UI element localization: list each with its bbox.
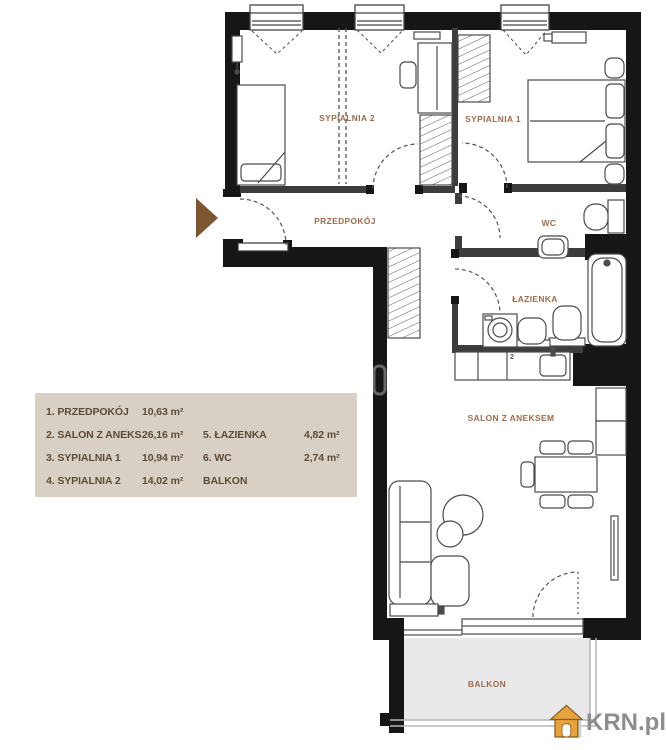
- legend-room-area: 14,02 m²: [142, 475, 183, 487]
- door-lazienka: [455, 269, 500, 314]
- door-sypialnia1: [462, 143, 507, 188]
- legend-room-name: 3. SYPIALNIA 1: [46, 452, 142, 464]
- legend-item: 4. SYPIALNIA 2 14,02 m²: [46, 469, 203, 492]
- dresser: [544, 32, 586, 43]
- washbasin: [549, 306, 585, 346]
- entrance-arrow-icon: [196, 198, 218, 238]
- legend-item: 2. SALON Z ANEKS. 26,16 m²: [46, 423, 203, 446]
- toilet-lazienka: [514, 318, 550, 347]
- legend-room-name: 6. WC: [203, 452, 304, 464]
- tv-stand: [390, 604, 444, 616]
- legend-item: 3. SYPIALNIA 1 10,94 m²: [46, 446, 203, 469]
- legend-item: 1. PRZEDPOKÓJ 10,63 m²: [46, 400, 203, 423]
- window-sypialnia2-right: [355, 5, 404, 30]
- door-balkon: [533, 572, 578, 617]
- legend-room-area: 10,63 m²: [142, 406, 183, 418]
- logo-text: KRN.pl: [586, 700, 666, 745]
- dashed-partition: [339, 28, 346, 184]
- door-sypialnia2: [373, 144, 418, 189]
- label-sypialnia2: SYPIALNIA 2: [319, 113, 375, 123]
- house-icon: [548, 700, 583, 745]
- legend-room-area: 10,94 m²: [142, 452, 183, 464]
- legend-room-name: 4. SYPIALNIA 2: [46, 475, 142, 487]
- entrance-door: [238, 199, 288, 251]
- legend-room-area: 26,16 m²: [142, 429, 183, 441]
- kitchen-counter: [455, 347, 570, 380]
- label-lazienka: ŁAZIENKA: [512, 294, 558, 304]
- legend-room-name: 1. PRZEDPOKÓJ: [46, 406, 142, 418]
- legend-item: BALKON: [203, 469, 357, 492]
- legend-room-area: 2,74 m²: [304, 452, 340, 464]
- legend-box: 1. PRZEDPOKÓJ 10,63 m² 2. SALON Z ANEKS.…: [35, 393, 357, 497]
- legend-room-area: 4,82 m²: [304, 429, 340, 441]
- legend-column-1: 1. PRZEDPOKÓJ 10,63 m² 2. SALON Z ANEKS.…: [46, 400, 203, 497]
- windows: [250, 5, 549, 30]
- label-salon: SALON Z ANEKSEM: [468, 413, 555, 423]
- floor-plan: SYPIALNIA 2 SYPIALNIA 1 PRZEDPOKÓJ WC ŁA…: [0, 0, 666, 750]
- radiator-salon: [611, 516, 618, 580]
- label-przedpokoj: PRZEDPOKÓJ: [314, 215, 376, 226]
- bathtub: [588, 254, 626, 346]
- label-sypialnia1: SYPIALNIA 1: [465, 114, 521, 124]
- label-wc: WC: [542, 218, 557, 228]
- legend-column-2: 5. ŁAZIENKA 4,82 m² 6. WC 2,74 m² BALKON: [203, 400, 357, 497]
- toilet-wc: [584, 200, 624, 233]
- coffee-table: [437, 495, 483, 547]
- legend-room-name: BALKON: [203, 475, 304, 487]
- washing-machine: [483, 314, 517, 347]
- kitchen-tall-units: [596, 388, 626, 455]
- legend-spacer: [203, 400, 357, 423]
- balcony-window: [404, 619, 583, 635]
- wardrobe-sypialnia2: [420, 115, 452, 185]
- dining-set: [521, 441, 597, 508]
- desk: [400, 32, 452, 113]
- bed-double: [528, 58, 625, 184]
- sink-wc: [538, 236, 568, 258]
- legend-room-name: 2. SALON Z ANEKS.: [46, 429, 142, 441]
- room-number-marker: 2: [510, 354, 514, 361]
- wardrobe-przedpokoj: [388, 248, 420, 338]
- window-sypialnia1: [501, 5, 549, 30]
- window-sypialnia2-left: [250, 5, 303, 30]
- legend-item: 6. WC 2,74 m²: [203, 446, 357, 469]
- wardrobe-sypialnia1: [458, 35, 490, 102]
- bed-single: [237, 85, 285, 185]
- krn-logo: KRN.pl: [548, 700, 666, 745]
- door-wc: [458, 196, 500, 238]
- furniture: [232, 32, 626, 616]
- legend-item: 5. ŁAZIENKA 4,82 m²: [203, 423, 357, 446]
- window-opening-symbols: [252, 30, 547, 55]
- label-balkon: BALKON: [468, 679, 506, 689]
- legend-room-name: 5. ŁAZIENKA: [203, 429, 304, 441]
